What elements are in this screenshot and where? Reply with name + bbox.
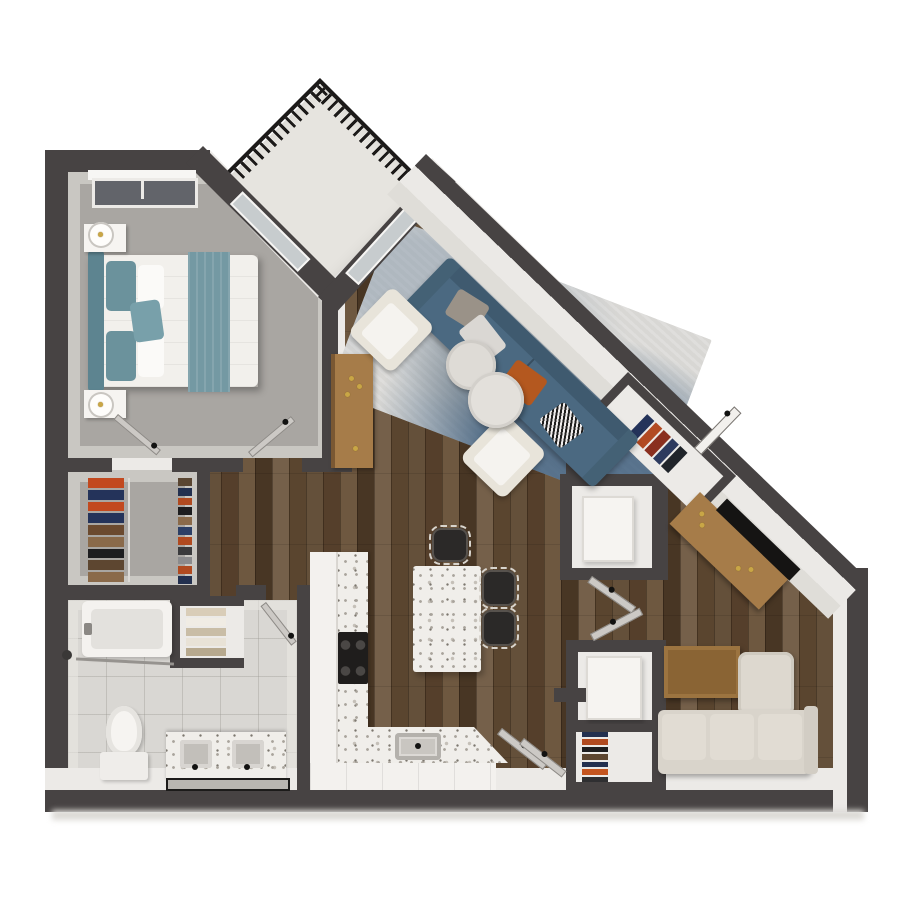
island-stool-east-1: [482, 570, 516, 606]
stripe: [88, 549, 124, 559]
stripe: [582, 777, 608, 782]
bathtub: [82, 601, 172, 657]
wall-den-west-a: [652, 474, 668, 580]
hall-closet-frame: [566, 724, 664, 790]
blanket-runner: [188, 252, 230, 392]
console-decor-gold: [357, 384, 362, 389]
desk-decor-gold: [698, 510, 705, 517]
stripe: [582, 747, 608, 752]
armchair-seat: [472, 428, 531, 487]
wall-closet-east: [197, 462, 210, 600]
wall-hall-stub: [554, 688, 586, 702]
stripe: [178, 498, 192, 506]
tub-faucet: [84, 623, 92, 635]
stripe: [88, 513, 124, 523]
console-decor-gold: [345, 392, 350, 397]
exterior-shadow: [52, 810, 864, 820]
stripe: [88, 525, 124, 535]
toilet-tank: [100, 752, 148, 780]
washer: [582, 496, 634, 562]
lamp-finial: [98, 232, 103, 237]
stripe: [178, 566, 192, 574]
shower-head: [62, 650, 72, 660]
kitchen-faucet: [415, 743, 421, 749]
stripe: [88, 537, 124, 547]
stripe: [582, 754, 608, 759]
kitchen-island: [413, 566, 481, 672]
kitchen-cabinets-west: [310, 552, 338, 790]
stripe: [88, 502, 124, 512]
dryer: [586, 656, 642, 720]
lamp-north: [88, 222, 114, 248]
toilet-bowl: [106, 706, 142, 756]
stripe: [178, 576, 192, 584]
stripe: [88, 572, 124, 582]
entry-door-handle: [723, 409, 731, 417]
vanity-faucet-left: [192, 764, 198, 770]
toilet: [100, 706, 148, 782]
floor-plan-canvas: [0, 0, 900, 900]
den-coffee-table: [664, 646, 740, 698]
laundry-nook-1: [560, 474, 664, 580]
stripe: [582, 739, 608, 744]
sectional-cushion-2: [710, 714, 754, 760]
window-pane-divider: [141, 181, 144, 199]
vanity-faucet-right: [244, 764, 250, 770]
stripe: [186, 608, 226, 616]
laundry-nook-1-interior: [572, 486, 664, 568]
linen-towels: [186, 608, 226, 656]
stacked-clothes: [582, 732, 608, 782]
hall-closet-interior: [576, 732, 664, 782]
headboard: [88, 251, 104, 391]
island-stool-north: [432, 528, 468, 562]
stripe: [186, 618, 226, 626]
bed: [88, 255, 258, 387]
closet-rod: [128, 478, 130, 582]
stripe: [178, 547, 192, 555]
coffee-table-round-2: [468, 372, 524, 428]
wall-bedroom-south-a: [45, 458, 112, 472]
pillow-teal-bottom: [106, 331, 136, 381]
console-decor-gold: [353, 446, 358, 451]
stripe: [186, 648, 226, 656]
console-table: [331, 354, 373, 468]
stripe: [88, 490, 124, 500]
wall-bath-east: [297, 585, 310, 790]
linen-closet-interior: [180, 606, 244, 658]
stripe: [178, 527, 192, 535]
sofa-pillow-houndstooth: [538, 401, 585, 449]
lamp-finial: [98, 402, 103, 407]
armchair-seat: [360, 302, 419, 361]
cooktop: [338, 632, 368, 684]
bathtub-basin: [91, 609, 163, 649]
stripe: [178, 488, 192, 496]
sectional-cushion-1: [662, 714, 706, 760]
vanity-counter: [166, 732, 286, 782]
closet-shoe-rack: [178, 478, 192, 584]
door-handle: [281, 418, 289, 426]
bedroom-window: [92, 178, 198, 208]
linen-closet-frame: [170, 596, 244, 668]
closet-hanging-clothes: [88, 478, 124, 582]
sectional-corner-cushion: [738, 652, 794, 716]
stripe: [186, 638, 226, 646]
wall-left: [45, 150, 68, 812]
stripe: [88, 560, 124, 570]
door-handle: [609, 618, 617, 626]
stripe: [582, 769, 608, 774]
pillow-accent-teal: [129, 299, 164, 343]
laundry-nook-2: [566, 640, 664, 732]
stripe: [186, 628, 226, 636]
stripe: [582, 732, 608, 737]
stripe: [178, 507, 192, 515]
stripe: [582, 762, 608, 767]
sectional-arm: [804, 706, 818, 774]
vanity-mirror: [166, 778, 290, 791]
stripe: [178, 478, 192, 486]
console-decor-gold: [349, 376, 354, 381]
wall-top: [45, 150, 210, 172]
lamp-south: [88, 392, 114, 418]
stripe: [88, 478, 124, 488]
desk-decor-gold: [747, 566, 754, 573]
desk-decor-gold: [735, 565, 742, 572]
sectional-cushion-3: [758, 714, 802, 760]
island-stool-east-2: [482, 610, 516, 646]
sectional-sofa: [658, 710, 810, 774]
stripe: [178, 557, 192, 565]
stripe: [178, 517, 192, 525]
desk-decor-gold: [699, 522, 706, 529]
kitchen-sink: [395, 733, 441, 760]
kitchen-cabinets-south: [310, 763, 496, 790]
stripe: [178, 537, 192, 545]
